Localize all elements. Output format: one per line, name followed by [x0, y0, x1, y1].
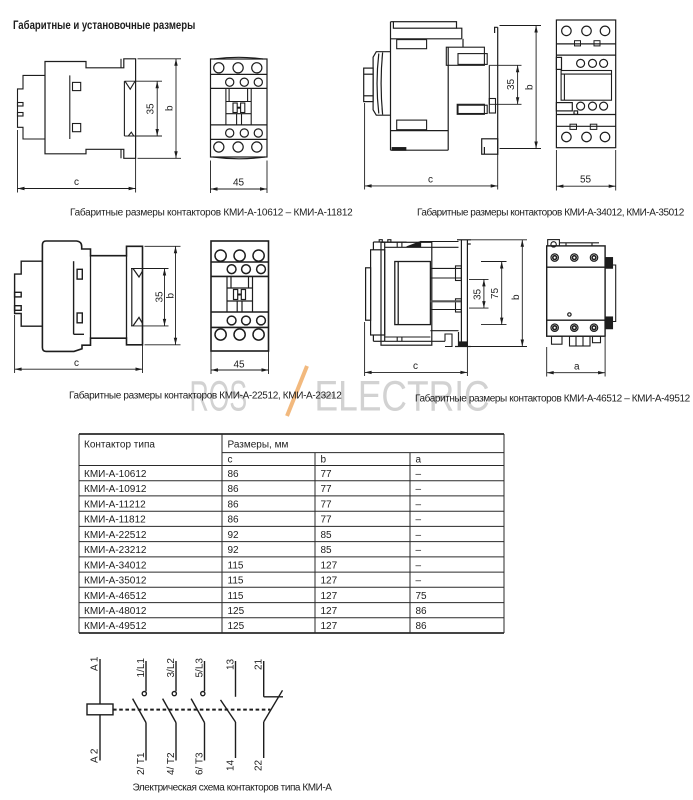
svg-text:77: 77: [321, 515, 333, 526]
svg-text:85: 85: [321, 545, 333, 556]
svg-text:13: 13: [226, 658, 237, 670]
svg-text:–: –: [416, 560, 422, 571]
svg-text:Габаритные размеры контакторов: Габаритные размеры контакторов КМИ-А-465…: [415, 393, 691, 405]
svg-text:c: c: [428, 175, 433, 186]
svg-text:c: c: [413, 361, 418, 372]
svg-text:86: 86: [228, 484, 240, 495]
svg-text:115: 115: [228, 591, 244, 602]
svg-text:127: 127: [321, 591, 338, 602]
svg-text:127: 127: [321, 560, 338, 571]
svg-text:3/L2: 3/L2: [166, 658, 177, 678]
svg-text:Габаритные размеры контакторов: Габаритные размеры контакторов КМИ-А-225…: [69, 390, 342, 402]
svg-text:Электрическая схема контакторо: Электрическая схема контакторов типа КМИ…: [133, 783, 333, 794]
svg-text:КМИ-А-48012: КМИ-А-48012: [84, 606, 147, 617]
svg-text:35: 35: [506, 78, 517, 90]
svg-text:–: –: [416, 576, 422, 587]
svg-text:125: 125: [228, 621, 245, 632]
svg-text:b: b: [165, 105, 176, 111]
svg-text:127: 127: [321, 621, 338, 632]
svg-text:14: 14: [226, 759, 237, 771]
svg-text:115: 115: [228, 576, 244, 587]
svg-text:Габаритные размеры контакторов: Габаритные размеры контакторов КМИ-А-106…: [70, 207, 353, 219]
svg-text:Контактор типа: Контактор типа: [84, 440, 155, 451]
svg-text:86: 86: [228, 499, 240, 510]
svg-text:21: 21: [254, 658, 265, 670]
svg-text:1/L1: 1/L1: [136, 658, 147, 678]
svg-text:Габаритные размеры контакторов: Габаритные размеры контакторов КМИ-А-340…: [417, 207, 685, 219]
svg-text:КМИ-А-11812: КМИ-А-11812: [84, 515, 146, 526]
svg-text:55: 55: [580, 175, 592, 186]
svg-text:75: 75: [490, 287, 501, 299]
svg-text:77: 77: [321, 499, 333, 510]
svg-text:КМИ-А-23212: КМИ-А-23212: [84, 545, 147, 556]
svg-text:КМИ-А-10612: КМИ-А-10612: [84, 469, 147, 480]
svg-text:4/ T2: 4/ T2: [166, 752, 177, 775]
svg-text:92: 92: [228, 545, 240, 556]
svg-text:c: c: [228, 455, 233, 466]
svg-text:5/L3: 5/L3: [195, 658, 206, 678]
svg-text:КМИ-А-46512: КМИ-А-46512: [84, 591, 147, 602]
svg-text:45: 45: [234, 360, 246, 371]
svg-text:A 1: A 1: [90, 656, 101, 671]
svg-text:86: 86: [228, 515, 240, 526]
svg-text:c: c: [74, 177, 79, 188]
svg-text:–: –: [416, 530, 422, 541]
svg-text:b: b: [321, 455, 327, 466]
svg-text:77: 77: [321, 469, 333, 480]
svg-text:КМИ-А-35012: КМИ-А-35012: [84, 576, 147, 587]
svg-text:–: –: [416, 499, 422, 510]
svg-text:127: 127: [321, 606, 338, 617]
svg-text:35: 35: [155, 291, 166, 303]
svg-text:–: –: [416, 469, 422, 480]
svg-text:b: b: [166, 293, 177, 299]
svg-text:КМИ-А-11212: КМИ-А-11212: [84, 499, 146, 510]
svg-text:75: 75: [416, 591, 428, 602]
svg-text:a: a: [574, 361, 580, 372]
svg-text:–: –: [416, 515, 422, 526]
svg-text:77: 77: [321, 484, 333, 495]
svg-text:127: 127: [321, 576, 338, 587]
svg-text:КМИ-А-49512: КМИ-А-49512: [84, 621, 147, 632]
svg-text:Габаритные и установочные разм: Габаритные и установочные размеры: [13, 19, 195, 32]
svg-text:КМИ-А-10912: КМИ-А-10912: [84, 484, 147, 495]
svg-text:КМИ-А-34012: КМИ-А-34012: [84, 560, 147, 571]
svg-text:c: c: [74, 358, 79, 369]
svg-text:Размеры, мм: Размеры, мм: [228, 440, 289, 451]
svg-text:45: 45: [233, 178, 245, 189]
svg-text:22: 22: [254, 759, 265, 771]
svg-text:115: 115: [228, 560, 244, 571]
svg-text:A 2: A 2: [90, 748, 101, 763]
svg-text:86: 86: [228, 469, 240, 480]
svg-text:125: 125: [228, 606, 245, 617]
svg-text:b: b: [511, 294, 522, 300]
svg-text:–: –: [416, 545, 422, 556]
svg-text:35: 35: [473, 288, 484, 300]
svg-text:b: b: [525, 84, 536, 90]
svg-text:86: 86: [416, 606, 428, 617]
svg-text:КМИ-А-22512: КМИ-А-22512: [84, 530, 147, 541]
svg-text:35: 35: [146, 103, 157, 115]
svg-text:92: 92: [228, 530, 240, 541]
svg-text:–: –: [416, 484, 422, 495]
svg-text:6/ T3: 6/ T3: [195, 752, 206, 775]
svg-text:86: 86: [416, 621, 428, 632]
svg-text:2/ T1: 2/ T1: [136, 752, 147, 775]
svg-text:85: 85: [321, 530, 333, 541]
svg-text:a: a: [416, 455, 422, 466]
